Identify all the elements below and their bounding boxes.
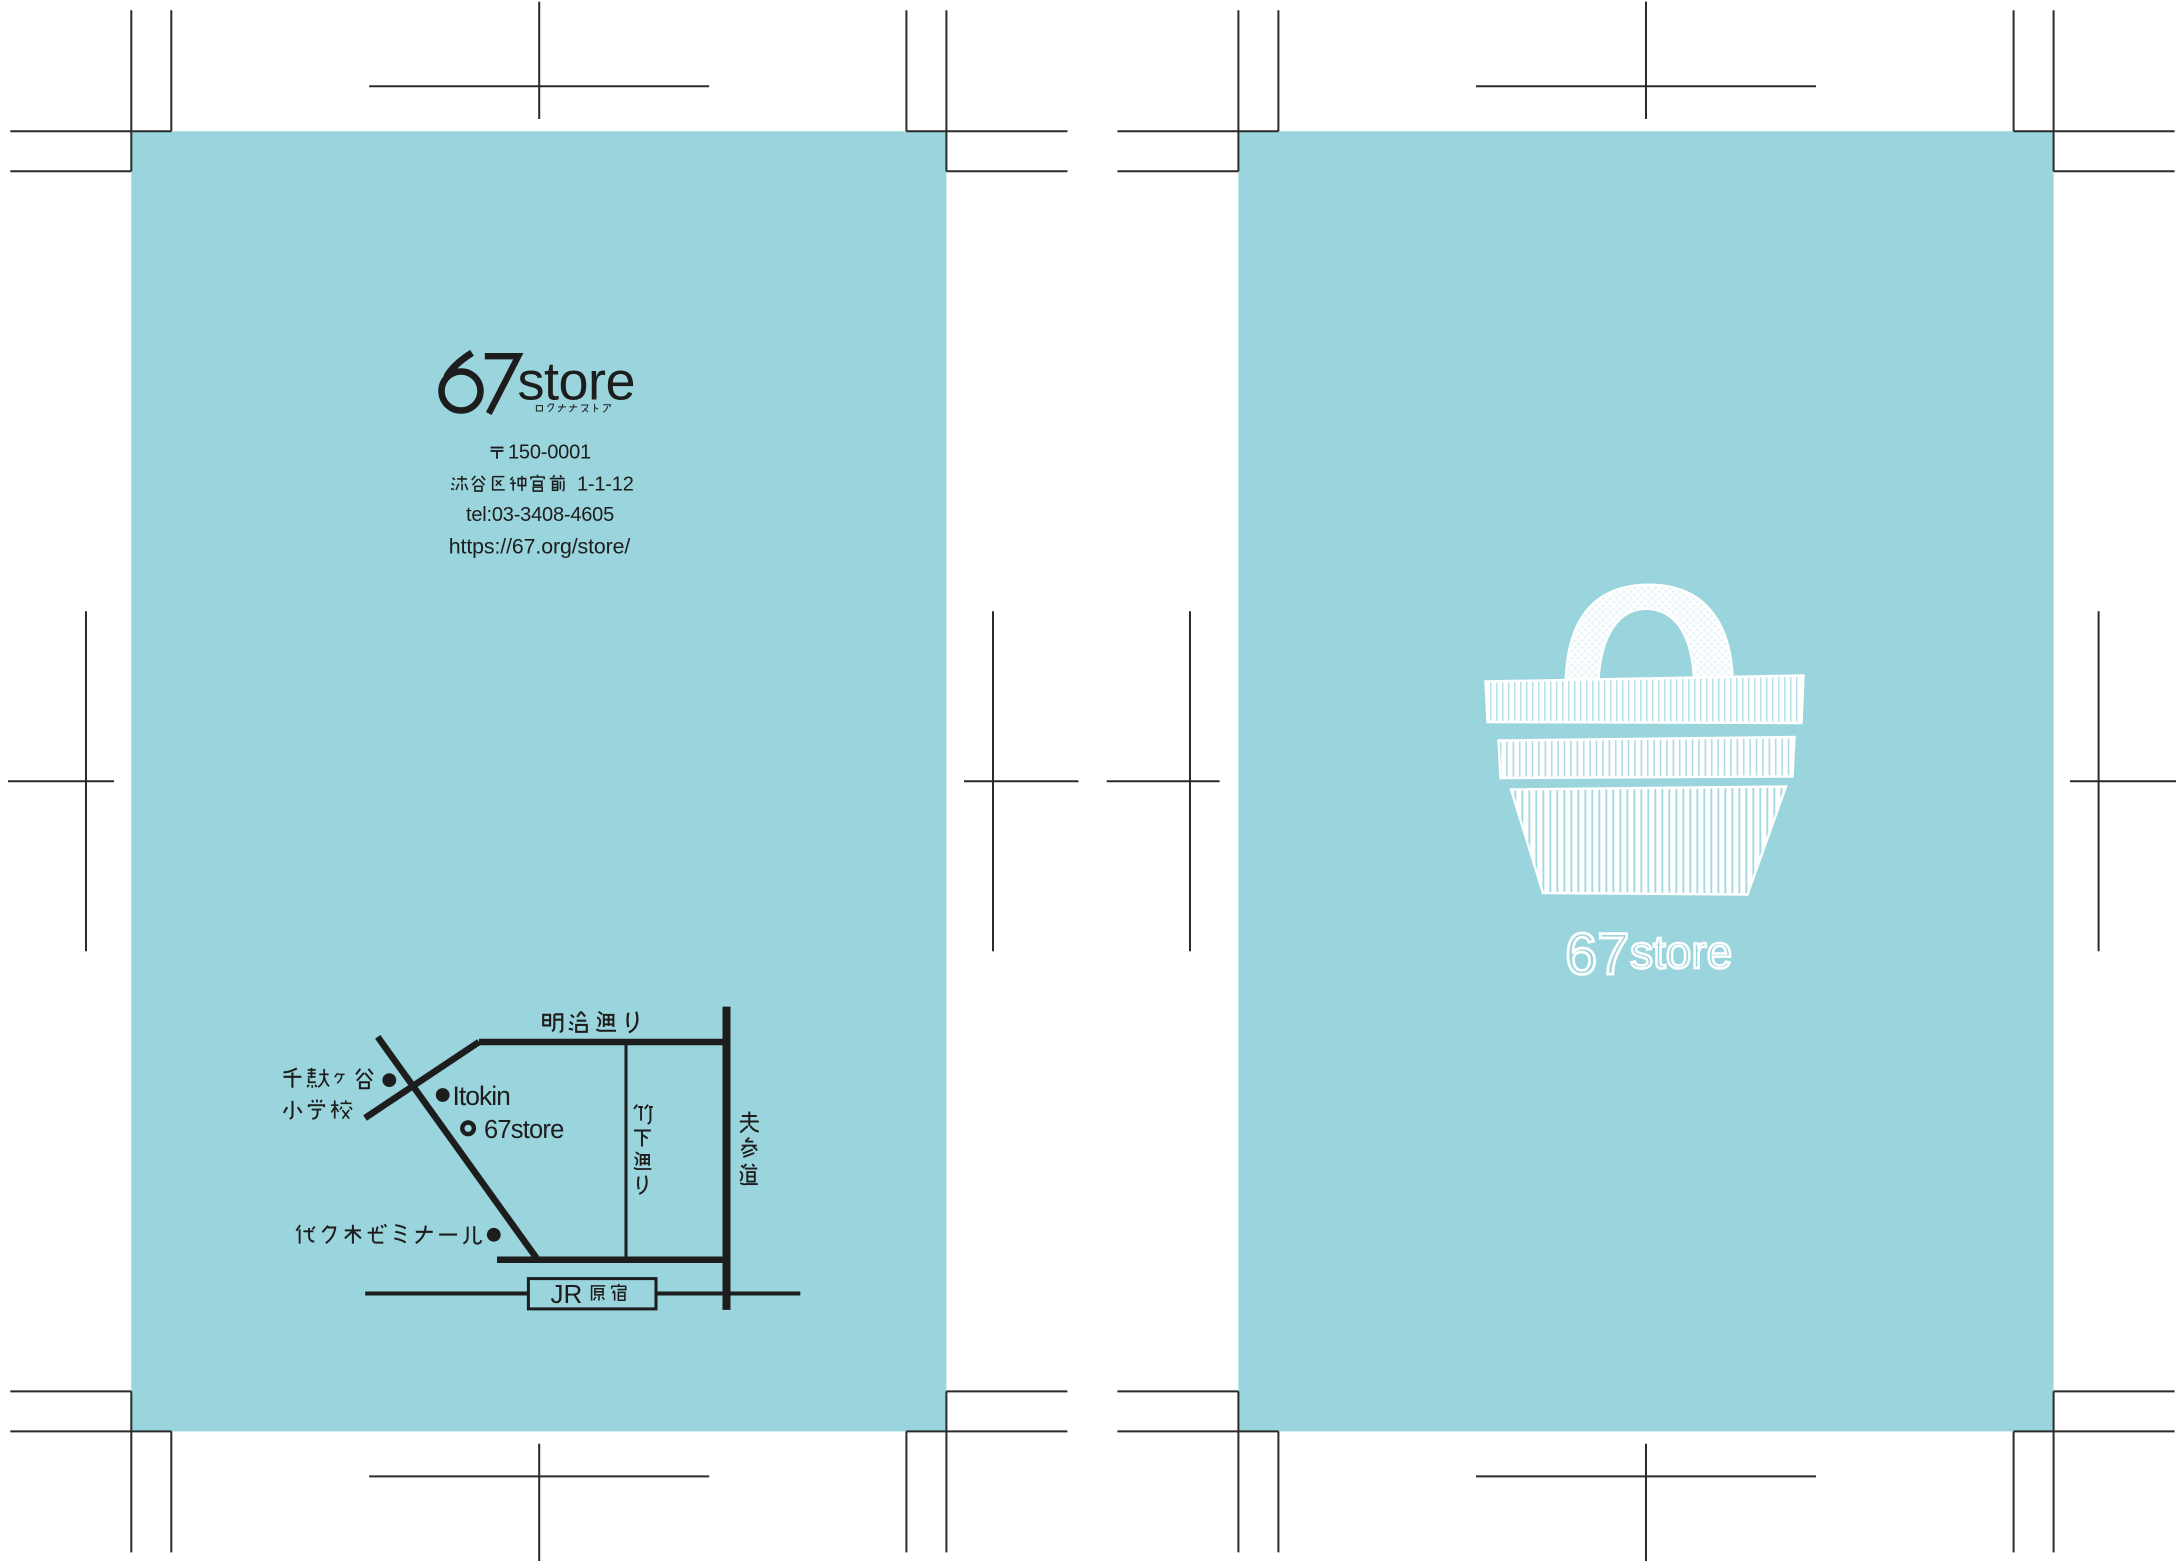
svg-text:tel:03-3408-4605: tel:03-3408-4605 — [466, 504, 614, 526]
svg-text:store: store — [518, 352, 636, 412]
svg-text:Itokin: Itokin — [453, 1081, 511, 1111]
svg-text:150-0001: 150-0001 — [508, 442, 591, 464]
svg-text:store: store — [1630, 926, 1732, 978]
svg-text:JR: JR — [551, 1279, 583, 1309]
svg-text:67: 67 — [1565, 922, 1630, 987]
svg-text:67store: 67store — [484, 1116, 564, 1144]
svg-text:1-1-12: 1-1-12 — [577, 474, 634, 496]
svg-text:https://67.org/store/: https://67.org/store/ — [449, 534, 631, 558]
